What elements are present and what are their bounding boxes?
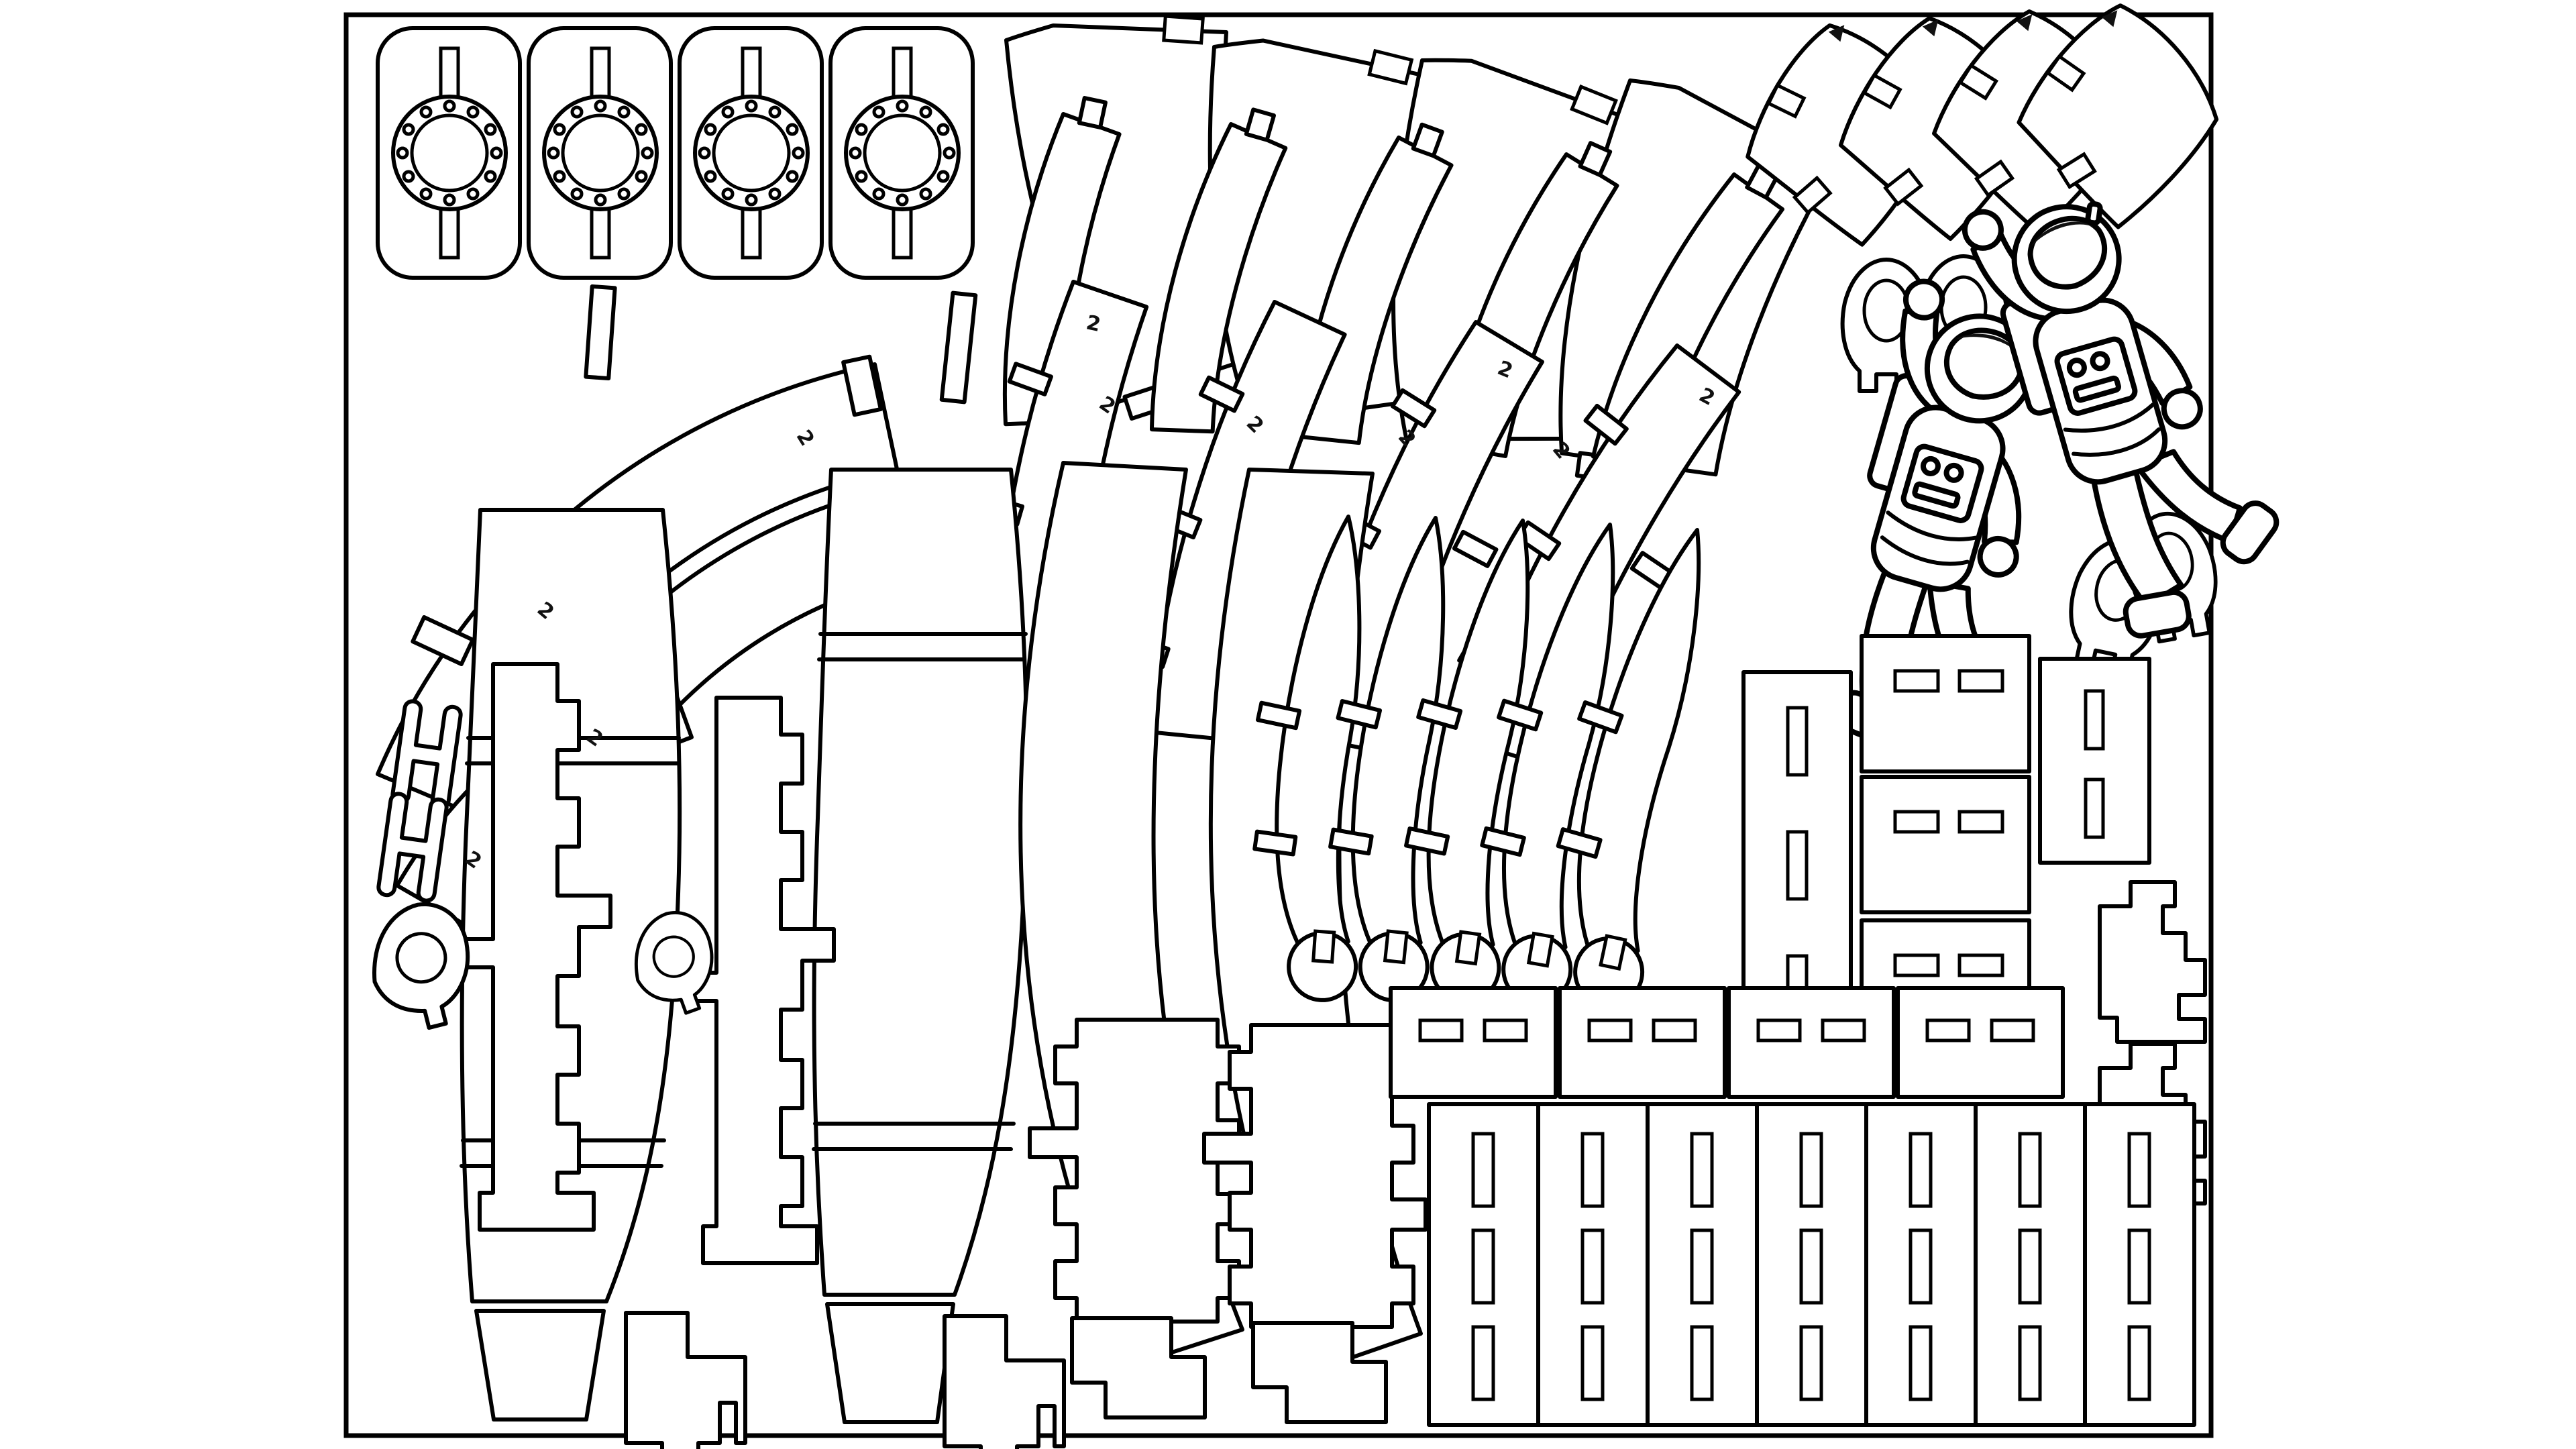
wide-slot-box-4: [1898, 988, 2063, 1097]
slot-column-5: [1866, 1104, 1976, 1425]
body-panel-outline: [814, 470, 1027, 1295]
porthole-plate-1: [378, 28, 520, 278]
porthole-plate-2: [529, 28, 671, 278]
boot-bracket-1: [626, 1313, 745, 1449]
stair-bracket-1: [2100, 882, 2205, 1042]
slot-column-grid: [1429, 1104, 2194, 1425]
slot-column-6: [1976, 1104, 2085, 1425]
porthole-plate-3: [680, 28, 822, 278]
tab-key-2: [942, 293, 976, 402]
stacked-slot-box-2: [1862, 777, 2029, 912]
bucket-base-1: [476, 1311, 604, 1419]
slot-column-7: [2085, 1104, 2194, 1425]
cut-sheet-canvas: 2 2 2 2 2 2 2 2 2 2 2 ▲ ▲ ▲ ▲: [0, 0, 2576, 1449]
tab-key-1: [586, 286, 614, 378]
bucket-base-2: [827, 1304, 953, 1422]
slot-column-2: [1538, 1104, 1648, 1425]
vertical-slot-box: [2040, 659, 2149, 863]
wide-slot-box-1: [1391, 988, 1556, 1097]
body-panel-stack-2: [814, 470, 1027, 1422]
slot-column-4: [1757, 1104, 1866, 1425]
slot-column-3: [1648, 1104, 1757, 1425]
wide-slot-box-3: [1729, 988, 1894, 1097]
castellated-spar-2: [688, 698, 834, 1263]
pattern-sheet-page: 2 2 2 2 2 2 2 2 2 2 2 ▲ ▲ ▲ ▲: [0, 0, 2576, 1449]
porthole-plate-row: [378, 28, 975, 402]
boot-bracket-2: [945, 1316, 1064, 1449]
porthole-plate-4: [830, 28, 973, 278]
wide-slot-box-2: [1560, 988, 1725, 1097]
wide-slot-box-row: [1391, 988, 2063, 1097]
stacked-slot-box-1: [1862, 636, 2029, 771]
slot-column-1: [1429, 1104, 1538, 1425]
